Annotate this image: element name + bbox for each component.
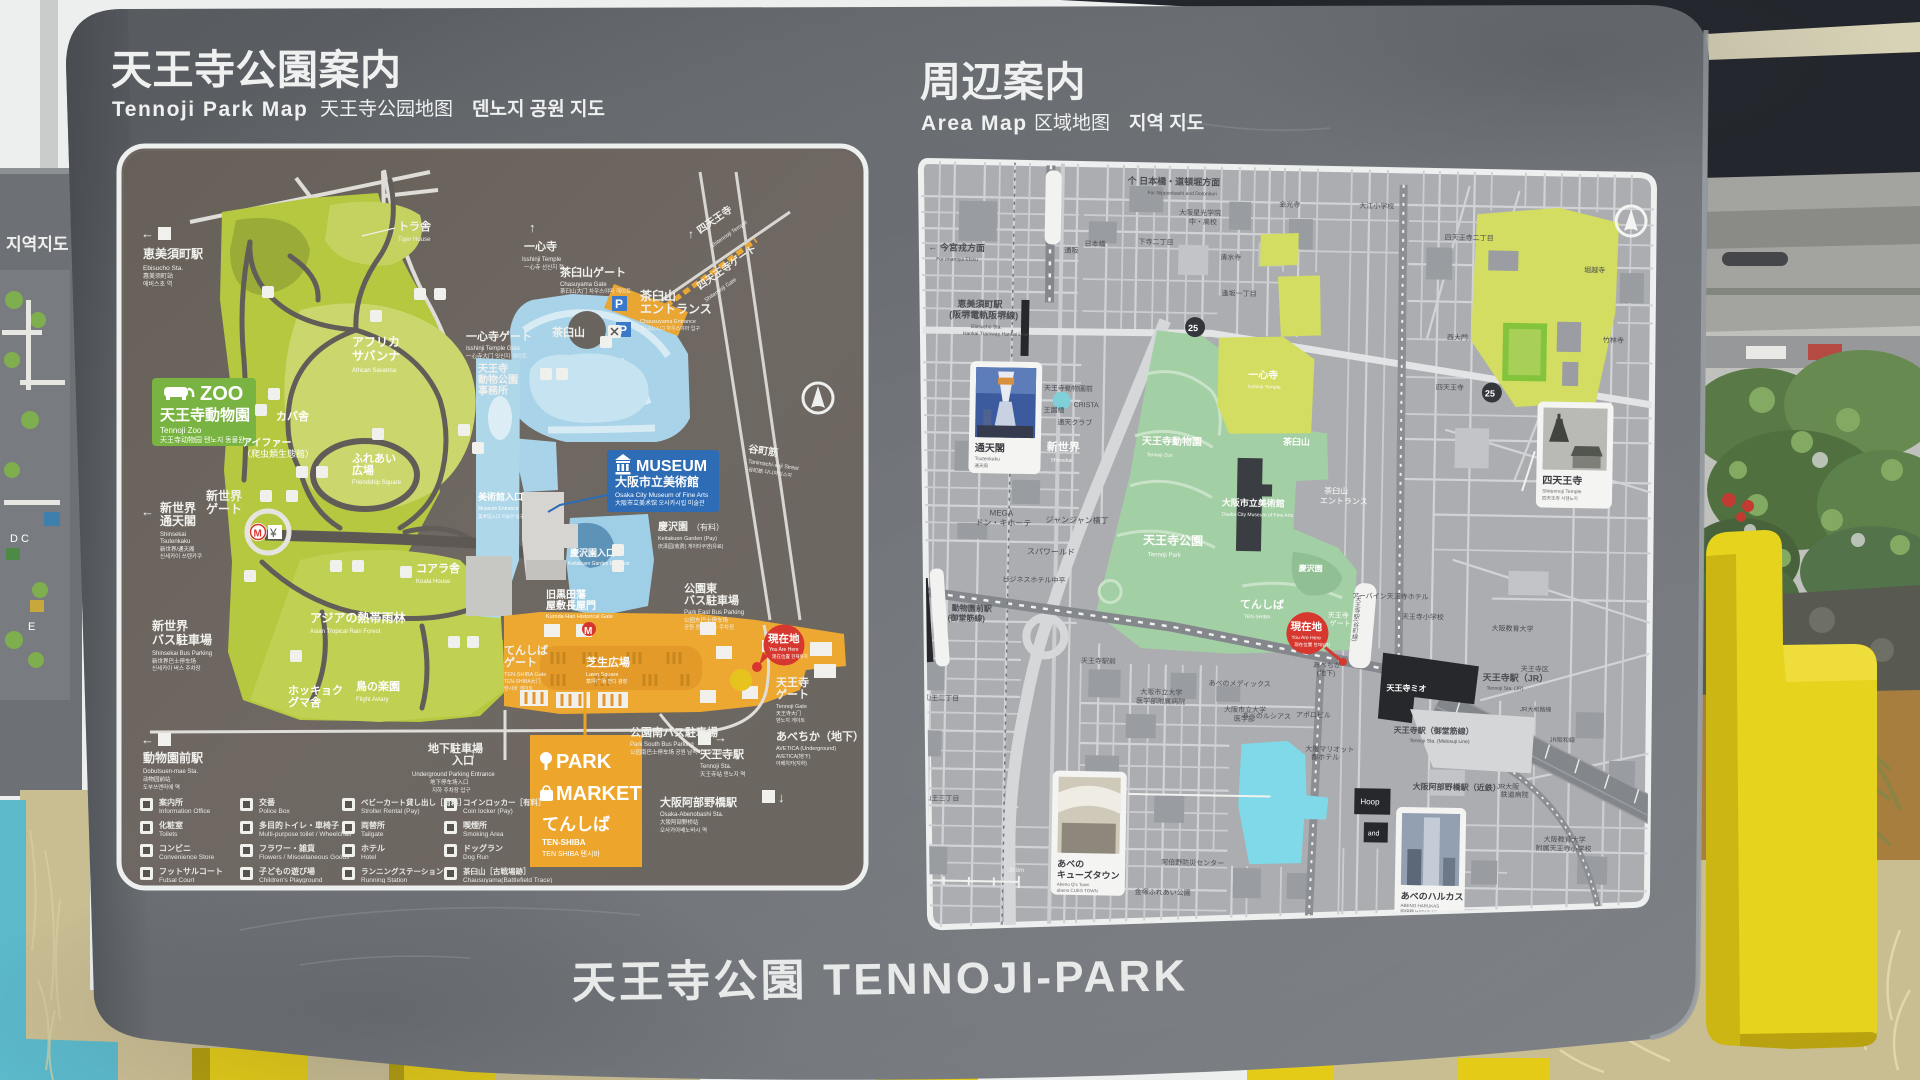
svg-text:Chausuyama(Battlefield Trace): Chausuyama(Battlefield Trace) xyxy=(463,877,552,884)
svg-text:Tsutenkaku: Tsutenkaku xyxy=(975,456,1001,462)
svg-text:(御堂筋線): (御堂筋線) xyxy=(948,613,986,624)
svg-text:茶臼山［古戦場跡］: 茶臼山［古戦場跡］ xyxy=(462,866,531,876)
svg-text:Flowers / Miscellaneous Goods: Flowers / Miscellaneous Goods xyxy=(259,854,350,861)
svg-text:신세카이 버스 주차장: 신세카이 버스 주차장 xyxy=(152,664,201,672)
svg-text:지역 지도: 지역 지도 xyxy=(1129,112,1204,134)
svg-text:Tennoji Park Map: Tennoji Park Map xyxy=(112,98,308,121)
svg-text:事務所: 事務所 xyxy=(478,384,508,397)
svg-text:MARKET: MARKET xyxy=(556,783,642,805)
svg-text:鳥の楽園: 鳥の楽園 xyxy=(356,679,400,693)
svg-text:茶臼山: 茶臼山 xyxy=(639,288,676,303)
svg-text:Information Office: Information Office xyxy=(159,808,211,815)
svg-text:Convenience Store: Convenience Store xyxy=(159,854,215,861)
svg-text:You Are Here: You Are Here xyxy=(1291,635,1321,642)
svg-text:ドン・キホーテ: ドン・キホーテ xyxy=(975,518,1031,528)
svg-text:공원 동쪽 버스 주차장: 공원 동쪽 버스 주차장 xyxy=(684,623,734,631)
svg-text:(阪堺電軌阪堺線): (阪堺電軌阪堺線) xyxy=(949,309,1018,321)
svg-text:Ebisucho Sta.: Ebisucho Sta. xyxy=(143,265,183,272)
svg-text:堀越寺: 堀越寺 xyxy=(1584,265,1605,274)
svg-text:スパワールド: スパワールド xyxy=(1027,547,1075,557)
svg-text:喫煙所: 喫煙所 xyxy=(463,820,487,830)
svg-text:Isshinji Temple: Isshinji Temple xyxy=(1248,384,1281,391)
svg-text:茶臼山ゲート: 茶臼山ゲート xyxy=(559,265,626,279)
svg-text:↑: ↑ xyxy=(688,227,694,241)
svg-text:Shinsekai: Shinsekai xyxy=(160,532,186,538)
svg-text:P: P xyxy=(615,297,623,311)
svg-text:(地下): (地下) xyxy=(1317,668,1336,677)
svg-text:Osaka-Abenobashi Sta.: Osaka-Abenobashi Sta. xyxy=(660,812,724,818)
svg-text:屋敷長屋門: 屋敷長屋門 xyxy=(546,599,596,612)
svg-text:M: M xyxy=(254,529,262,540)
svg-text:茶臼山: 茶臼山 xyxy=(551,325,585,339)
svg-text:天王寺大门: 天王寺大门 xyxy=(776,710,801,717)
svg-text:あべの: あべの xyxy=(1057,859,1084,869)
svg-text:あべちか: あべちか xyxy=(1313,661,1341,670)
svg-text:Tsutenkaku: Tsutenkaku xyxy=(160,539,190,545)
svg-text:旧黒田藩: 旧黒田藩 xyxy=(546,588,587,601)
svg-text:天王寺動物園: 天王寺動物園 xyxy=(1142,434,1202,448)
svg-text:天王寺公园地图: 天王寺公园地图 xyxy=(320,98,453,120)
svg-text:↑: ↑ xyxy=(529,220,536,235)
svg-text:Tennoji Sta. (JR): Tennoji Sta. (JR) xyxy=(1486,685,1523,692)
svg-text:Area Map: Area Map xyxy=(921,112,1028,135)
svg-text:大阪市立美術館: 大阪市立美術館 xyxy=(615,474,699,489)
svg-text:MUSEUM: MUSEUM xyxy=(636,458,707,475)
svg-text:→: → xyxy=(714,730,727,745)
svg-text:茶臼山: 茶臼山 xyxy=(1282,436,1310,448)
svg-text:Chasuyama Gate: Chasuyama Gate xyxy=(560,282,607,288)
svg-text:아베치카(지하): 아베치카(지하) xyxy=(776,760,807,767)
svg-text:ホテル: ホテル xyxy=(361,844,385,853)
svg-text:For Imamiya Ebisu: For Imamiya Ebisu xyxy=(936,256,978,263)
svg-text:西大門: 西大門 xyxy=(1447,333,1468,342)
svg-text:Tennoji Zoo: Tennoji Zoo xyxy=(160,426,202,435)
svg-text:大阪阿部野桥站: 大阪阿部野桥站 xyxy=(660,818,699,826)
svg-text:キューズタウン: キューズタウン xyxy=(1057,869,1120,881)
svg-text:ZOO: ZOO xyxy=(200,383,243,405)
svg-text:地下停车场入口: 地下停车场入口 xyxy=(430,778,469,786)
svg-text:ホッキョク: ホッキョク xyxy=(288,684,343,697)
svg-text:Underground Parking Entrance: Underground Parking Entrance xyxy=(412,772,495,778)
svg-text:Tennoji Sta. (Midosuji Line): Tennoji Sta. (Midosuji Line) xyxy=(1409,738,1469,745)
svg-text:天王寺駅（御堂筋線）: 天王寺駅（御堂筋線） xyxy=(1394,725,1474,736)
svg-text:新世界: 新世界 xyxy=(1047,439,1080,454)
svg-text:ゲート: ゲート xyxy=(1330,619,1351,628)
svg-text:通天閣: 通天閣 xyxy=(975,441,1005,455)
svg-text:天王寺: 天王寺 xyxy=(776,675,809,689)
svg-text:Koala House: Koala House xyxy=(416,579,451,585)
svg-text:アイファー: アイファー xyxy=(242,437,292,449)
svg-text:広場: 広場 xyxy=(352,463,374,477)
svg-text:African Savanna: African Savanna xyxy=(352,368,397,374)
svg-text:天王寺站 덴노지 역: 天王寺站 덴노지 역 xyxy=(700,770,745,778)
svg-text:지역지도: 지역지도 xyxy=(6,235,69,254)
svg-text:Toilets: Toilets xyxy=(159,831,178,838)
svg-text:←: ← xyxy=(141,226,154,241)
svg-text:Hotel: Hotel xyxy=(361,854,377,861)
svg-text:慶沢園: 慶沢園 xyxy=(1299,563,1323,573)
svg-text:慶沢園入口: 慶沢園入口 xyxy=(570,547,615,558)
svg-text:公园东巴士停车场: 公园东巴士停车场 xyxy=(684,616,729,624)
svg-text:四天王寺: 四天王寺 xyxy=(1542,473,1582,487)
svg-text:Tennoji Sta.: Tennoji Sta. xyxy=(700,764,732,770)
svg-text:Asian Tropical Rain Forest: Asian Tropical Rain Forest xyxy=(310,629,381,635)
svg-text:美術館入口: 美術館入口 xyxy=(478,491,523,502)
svg-text:一心寺大门 잇신지 게이트: 一心寺大门 잇신지 게이트 xyxy=(466,352,527,360)
svg-text:25: 25 xyxy=(1188,323,1198,333)
svg-text:D C: D C xyxy=(10,533,29,545)
svg-text:公園東: 公園東 xyxy=(684,581,718,595)
svg-text:多目的トイレ・車椅子: 多目的トイレ・車椅子 xyxy=(259,820,339,830)
svg-text:てんしば: てんしば xyxy=(1240,597,1284,612)
svg-text:오사카아베노바시 역: 오사카아베노바시 역 xyxy=(660,826,707,834)
svg-text:王園橋: 王園橋 xyxy=(1043,405,1064,414)
svg-text:新世界巴士停车场: 新世界巴士停车场 xyxy=(152,657,197,665)
svg-text:Park East Bus Parking: Park East Bus Parking xyxy=(684,610,744,616)
svg-text:Tennoji Zoo: Tennoji Zoo xyxy=(1147,452,1173,458)
svg-text:恵美須町駅: 恵美須町駅 xyxy=(957,298,1003,310)
svg-text:惠美须町站: 惠美须町站 xyxy=(143,272,173,280)
svg-text:化粧室: 化粧室 xyxy=(159,820,183,830)
svg-text:天王寺公園案内: 天王寺公園案内 xyxy=(111,47,402,93)
svg-text:動物公園: 動物公園 xyxy=(478,373,518,386)
svg-text:Museum Entrance: Museum Entrance xyxy=(478,506,519,512)
svg-text:TEN SHIBA 텐시바: TEN SHIBA 텐시바 xyxy=(542,849,600,858)
svg-text:TEN-SHIBA: TEN-SHIBA xyxy=(1244,614,1271,620)
svg-text:一心寺 선신지 절: 一心寺 선신지 절 xyxy=(524,263,564,271)
svg-text:大阪市立美术馆 오사카시립 미술관: 大阪市立美术馆 오사카시립 미술관 xyxy=(615,499,705,507)
svg-text:案内所: 案内所 xyxy=(158,797,183,807)
svg-text:てんしば: てんしば xyxy=(542,815,610,834)
svg-text:E: E xyxy=(28,621,35,633)
svg-text:MEGA: MEGA xyxy=(990,508,1014,517)
svg-text:通天閣: 通天閣 xyxy=(160,513,196,528)
svg-text:通阪: 通阪 xyxy=(1064,246,1078,255)
svg-text:25: 25 xyxy=(1485,388,1495,398)
svg-text:You Are Here: You Are Here xyxy=(769,647,799,653)
svg-text:茶臼山入口 차우스야마 입구: 茶臼山入口 차우스야마 입구 xyxy=(640,325,700,332)
svg-text:交番: 交番 xyxy=(259,797,276,807)
svg-text:庆泽园(收费) 게이타쿠엔(유료): 庆泽园(收费) 게이타쿠엔(유료) xyxy=(658,543,724,550)
svg-text:四天王寺二丁目: 四天王寺二丁目 xyxy=(1445,234,1494,243)
svg-text:美术馆入口 미술관 입구: 美术馆入口 미술관 입구 xyxy=(478,513,524,520)
svg-text:TEN-SHIBA: TEN-SHIBA xyxy=(542,838,586,847)
svg-text:ゲート: ゲート xyxy=(776,687,809,701)
svg-text:動物園前駅: 動物園前駅 xyxy=(952,603,993,614)
svg-text:ランニングステーション: ランニングステーション xyxy=(361,866,444,876)
svg-text:（爬虫類生態館）: （爬虫類生態館） xyxy=(242,448,314,459)
svg-text:清水寺: 清水寺 xyxy=(1220,253,1241,262)
svg-text:Osaka City Museum of Fine Arts: Osaka City Museum of Fine Arts xyxy=(615,492,709,499)
svg-text:Keitakuen Garden (Pay): Keitakuen Garden (Pay) xyxy=(658,536,717,542)
svg-text:CRISTA: CRISTA xyxy=(1074,402,1100,409)
svg-text:サバンナ: サバンナ xyxy=(352,349,400,363)
svg-text:大阪市立美術館: 大阪市立美術館 xyxy=(1222,497,1285,509)
svg-text:Kuroda Han Historical Gate: Kuroda Han Historical Gate xyxy=(546,614,613,620)
svg-text:下寺二丁目: 下寺二丁目 xyxy=(1139,238,1174,247)
svg-text:アジアの熱帯雨林: アジアの熱帯雨林 xyxy=(310,610,406,625)
svg-text:フラワー・雑貨: フラワー・雑貨 xyxy=(259,843,315,853)
svg-text:Dog Run: Dog Run xyxy=(463,854,489,861)
svg-text:신세카이 쓰텐카쿠: 신세카이 쓰텐카쿠 xyxy=(160,552,202,560)
svg-text:도부쓰엔마에 역: 도부쓰엔마에 역 xyxy=(143,783,180,791)
svg-text:Shitennoji Temple: Shitennoji Temple xyxy=(1542,488,1582,495)
svg-text:M: M xyxy=(584,626,592,637)
svg-text:Hoop: Hoop xyxy=(1360,797,1380,806)
svg-text:竹林寺: 竹林寺 xyxy=(1603,336,1624,345)
svg-text:↑: ↑ xyxy=(470,746,477,761)
svg-text:ABENO HARUKAS: ABENO HARUKAS xyxy=(1400,903,1439,909)
svg-text:←: ← xyxy=(141,732,154,747)
svg-text:カバ舎: カバ舎 xyxy=(276,409,310,423)
svg-text:天王寺ミオ: 天王寺ミオ xyxy=(1386,683,1426,694)
svg-text:ふれあい: ふれあい xyxy=(352,452,396,465)
svg-text:新世界: 新世界 xyxy=(206,488,242,503)
svg-text:一心寺: 一心寺 xyxy=(1248,368,1278,382)
svg-text:JR大阪: JR大阪 xyxy=(1497,782,1520,791)
svg-text:新世界: 新世界 xyxy=(160,500,196,515)
svg-text:大阪阿部野橋駅（近鉄）: 大阪阿部野橋駅（近鉄） xyxy=(1413,781,1501,793)
svg-text:慶沢園: 慶沢園 xyxy=(658,520,688,533)
svg-text:バス駐車場: バス駐車場 xyxy=(152,632,212,647)
svg-text:Multi-purpose toilet / Wheelch: Multi-purpose toilet / Wheelchair xyxy=(259,831,353,838)
svg-text:200m: 200m xyxy=(1009,868,1024,874)
svg-text:Flight Aviary: Flight Aviary xyxy=(356,697,389,703)
svg-text:天王寺动物园 텐노지 동물원: 天王寺动物园 텐노지 동물원 xyxy=(160,435,245,444)
svg-text:TEN-SHIBA Gate: TEN-SHIBA Gate xyxy=(504,672,547,678)
svg-text:에비스초 역: 에비스초 역 xyxy=(143,280,172,288)
svg-text:Chausuyama Entrance: Chausuyama Entrance xyxy=(640,319,696,325)
svg-text:Tailgate: Tailgate xyxy=(361,831,384,838)
svg-text:一心寺ゲート: 一心寺ゲート xyxy=(466,329,532,343)
svg-text:Friendship Square: Friendship Square xyxy=(352,480,402,486)
svg-text:天王寺駅（JR）: 天王寺駅（JR） xyxy=(1483,671,1549,683)
svg-text:Isshinji Temple: Isshinji Temple xyxy=(522,257,562,263)
svg-text:コアラ舎: コアラ舎 xyxy=(416,561,461,575)
svg-text:덴노지 게이트: 덴노지 게이트 xyxy=(776,717,805,724)
svg-text:Coin locker (Pay): Coin locker (Pay) xyxy=(463,808,513,815)
svg-text:Smoking Area: Smoking Area xyxy=(463,831,504,838)
svg-text:Children's Playground: Children's Playground xyxy=(259,877,323,884)
svg-text:両替所: 両替所 xyxy=(361,820,385,830)
svg-text:芝生広場: 芝生広場 xyxy=(586,655,630,669)
svg-text:天王寺: 天王寺 xyxy=(1328,612,1349,620)
svg-text:天王寺動物園: 天王寺動物園 xyxy=(160,406,250,424)
svg-text:金光寺: 金光寺 xyxy=(1279,200,1300,209)
svg-text:AVETICA (Underground): AVETICA (Underground) xyxy=(776,746,836,752)
svg-text:アーバイン天王寺ホテル: アーバイン天王寺ホテル xyxy=(1352,592,1429,601)
svg-text:↓: ↓ xyxy=(778,790,785,805)
svg-text:Police Box: Police Box xyxy=(259,808,290,815)
svg-text:动物园前站: 动物园前站 xyxy=(143,775,171,783)
svg-text:バス駐車場: バス駐車場 xyxy=(684,593,739,607)
svg-text:Futsal Court: Futsal Court xyxy=(159,877,195,884)
svg-text:Isshinji Temple Gate: Isshinji Temple Gate xyxy=(466,346,521,352)
svg-text:Dobutsuen-mae Sta.: Dobutsuen-mae Sta. xyxy=(143,769,198,775)
svg-text:動物園前駅: 動物園前駅 xyxy=(143,750,204,765)
svg-text:エントランス: エントランス xyxy=(640,302,712,316)
svg-text:天王寺公園: 天王寺公園 xyxy=(1143,532,1203,548)
svg-text:大阪阿部野橋駅: 大阪阿部野橋駅 xyxy=(660,795,737,809)
svg-text:Shinsekai: Shinsekai xyxy=(1051,457,1073,463)
svg-text:←: ← xyxy=(141,504,154,519)
svg-text:トラ舎: トラ舎 xyxy=(398,219,432,233)
svg-text:てんしば: てんしば xyxy=(504,643,548,657)
svg-text:天王寺: 天王寺 xyxy=(478,362,508,375)
svg-text:Stroller Rental (Pay): Stroller Rental (Pay) xyxy=(361,808,420,815)
svg-text:フットサルコート: フットサルコート xyxy=(159,867,223,876)
svg-text:天王寺公園 TENNOJI-PARK: 天王寺公園 TENNOJI-PARK xyxy=(572,951,1189,1008)
svg-text:and: and xyxy=(1368,830,1380,837)
svg-text:abeno CUES TOWN: abeno CUES TOWN xyxy=(1057,888,1098,894)
svg-text:덴노지 공원 지도: 덴노지 공원 지도 xyxy=(472,98,605,120)
svg-text:グマ舎: グマ舎 xyxy=(288,695,322,709)
svg-text:エントランス: エントランス xyxy=(1320,496,1368,506)
svg-text:For Nipponbashi and Dotonbori: For Nipponbashi and Dotonbori xyxy=(1147,190,1217,197)
svg-text:現在地: 現在地 xyxy=(768,632,800,645)
svg-text:コンビニ: コンビニ xyxy=(159,843,191,853)
svg-text:子どもの遊び場: 子どもの遊び場 xyxy=(259,866,315,876)
svg-text:Tennoji Park: Tennoji Park xyxy=(1148,552,1182,559)
svg-text:Ebisucho Sta.: Ebisucho Sta. xyxy=(971,324,1002,331)
svg-text:¥: ¥ xyxy=(269,526,277,540)
svg-text:지하 주차장 입구: 지하 주차장 입구 xyxy=(432,786,470,794)
svg-text:草坪广场 잔디 광장: 草坪广场 잔디 광장 xyxy=(586,678,628,685)
svg-text:Hankai Tramway Hankai Line: Hankai Tramway Hankai Line xyxy=(963,331,1028,338)
svg-text:（有料）: （有料） xyxy=(692,522,724,532)
svg-text:四天王寺: 四天王寺 xyxy=(1436,383,1464,392)
svg-text:ゲート: ゲート xyxy=(504,655,537,669)
svg-text:Tiger House: Tiger House xyxy=(398,237,431,243)
svg-text:Tennoji Gate: Tennoji Gate xyxy=(776,704,807,710)
svg-text:周辺案内: 周辺案内 xyxy=(920,59,1086,105)
svg-text:新世界/通天阁: 新世界/通天阁 xyxy=(160,545,195,553)
svg-text:一心寺: 一心寺 xyxy=(524,239,557,253)
svg-text:ベビーカート貸し出し［有料］: ベビーカート貸し出し［有料］ xyxy=(361,797,466,807)
svg-text:現在地: 現在地 xyxy=(1290,620,1322,634)
svg-text:新世界: 新世界 xyxy=(152,618,188,633)
svg-text:あべのハルカス: あべのハルカス xyxy=(1401,891,1464,902)
svg-text:Lawn Square: Lawn Square xyxy=(586,672,618,678)
svg-text:あべのルシアス: あべのルシアス xyxy=(1242,712,1291,721)
svg-text:Shinsekai Bus Parking: Shinsekai Bus Parking xyxy=(152,651,212,657)
svg-text:日本橋: 日本橋 xyxy=(1084,239,1105,248)
svg-text:恵美須町駅: 恵美須町駅 xyxy=(143,246,204,261)
svg-text:AVETICA(地下): AVETICA(地下) xyxy=(776,753,811,760)
svg-text:Park South Bus Parking: Park South Bus Parking xyxy=(630,742,694,748)
svg-text:区域地图: 区域地图 xyxy=(1034,112,1110,134)
svg-text:茶臼山: 茶臼山 xyxy=(1324,485,1348,495)
svg-text:ゲート: ゲート xyxy=(206,501,242,516)
svg-text:コインロッカー［有料］: コインロッカー［有料］ xyxy=(463,797,546,807)
svg-text:茶臼山大门 차우스야마 게이트: 茶臼山大门 차우스야마 게이트 xyxy=(560,287,631,295)
svg-text:都ホテル: 都ホテル xyxy=(1311,753,1339,762)
svg-text:TEN-SHIBA大门: TEN-SHIBA大门 xyxy=(504,678,541,685)
svg-text:アフリカ: アフリカ xyxy=(352,335,400,349)
svg-text:ドッグラン: ドッグラン xyxy=(463,843,503,853)
svg-text:텐시바 게이트: 텐시바 게이트 xyxy=(504,685,533,692)
svg-text:个 日本橋・道頓堀方面: 个 日本橋・道頓堀方面 xyxy=(1127,175,1221,188)
svg-text:Abeno Q's Town: Abeno Q's Town xyxy=(1057,882,1090,888)
svg-text:Running Station: Running Station xyxy=(361,877,408,884)
svg-text:← 今宮戎方面: ← 今宮戎方面 xyxy=(928,241,985,253)
svg-text:PARK: PARK xyxy=(556,751,612,773)
svg-text:あべちか（地下）: あべちか（地下） xyxy=(776,729,864,743)
svg-text:ジャンジャン横丁: ジャンジャン横丁 xyxy=(1045,514,1108,525)
svg-text:现在位置 현재위치: 现在位置 현재위치 xyxy=(772,653,808,660)
svg-text:天王寺駅: 天王寺駅 xyxy=(700,747,744,761)
